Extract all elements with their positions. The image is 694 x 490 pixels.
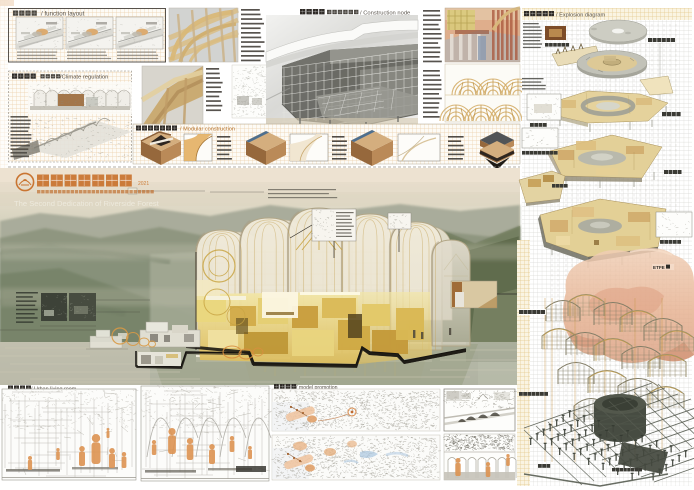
svg-text:/ Explosion diagram: / Explosion diagram — [556, 13, 605, 19]
svg-text:/ function layout: / function layout — [41, 11, 85, 18]
svg-text:The Second Dedication of River: The Second Dedication of Riverside Fores… — [14, 199, 160, 208]
svg-text:2021: 2021 — [138, 181, 149, 187]
svg-text:/ Modular construction: / Modular construction — [180, 127, 235, 133]
svg-text:ETFE: ETFE — [653, 265, 665, 270]
svg-text:/Climate regulation: /Climate regulation — [60, 75, 108, 81]
